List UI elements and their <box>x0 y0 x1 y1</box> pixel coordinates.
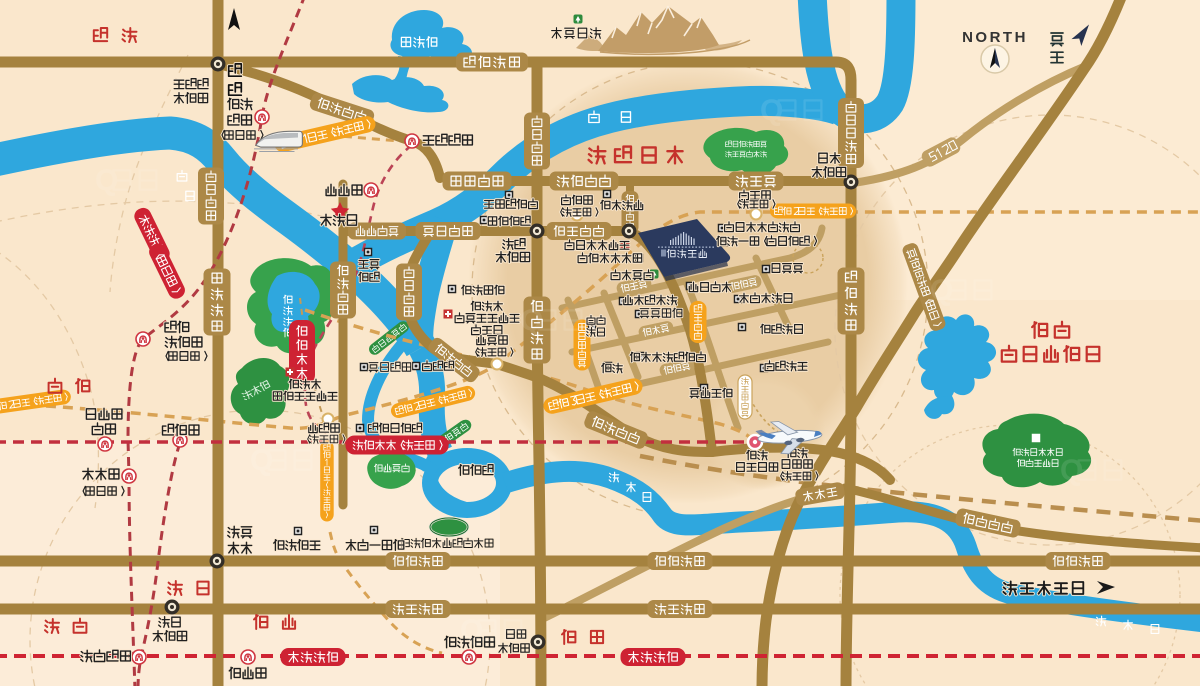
svg-text:NORTH: NORTH <box>962 29 1028 46</box>
